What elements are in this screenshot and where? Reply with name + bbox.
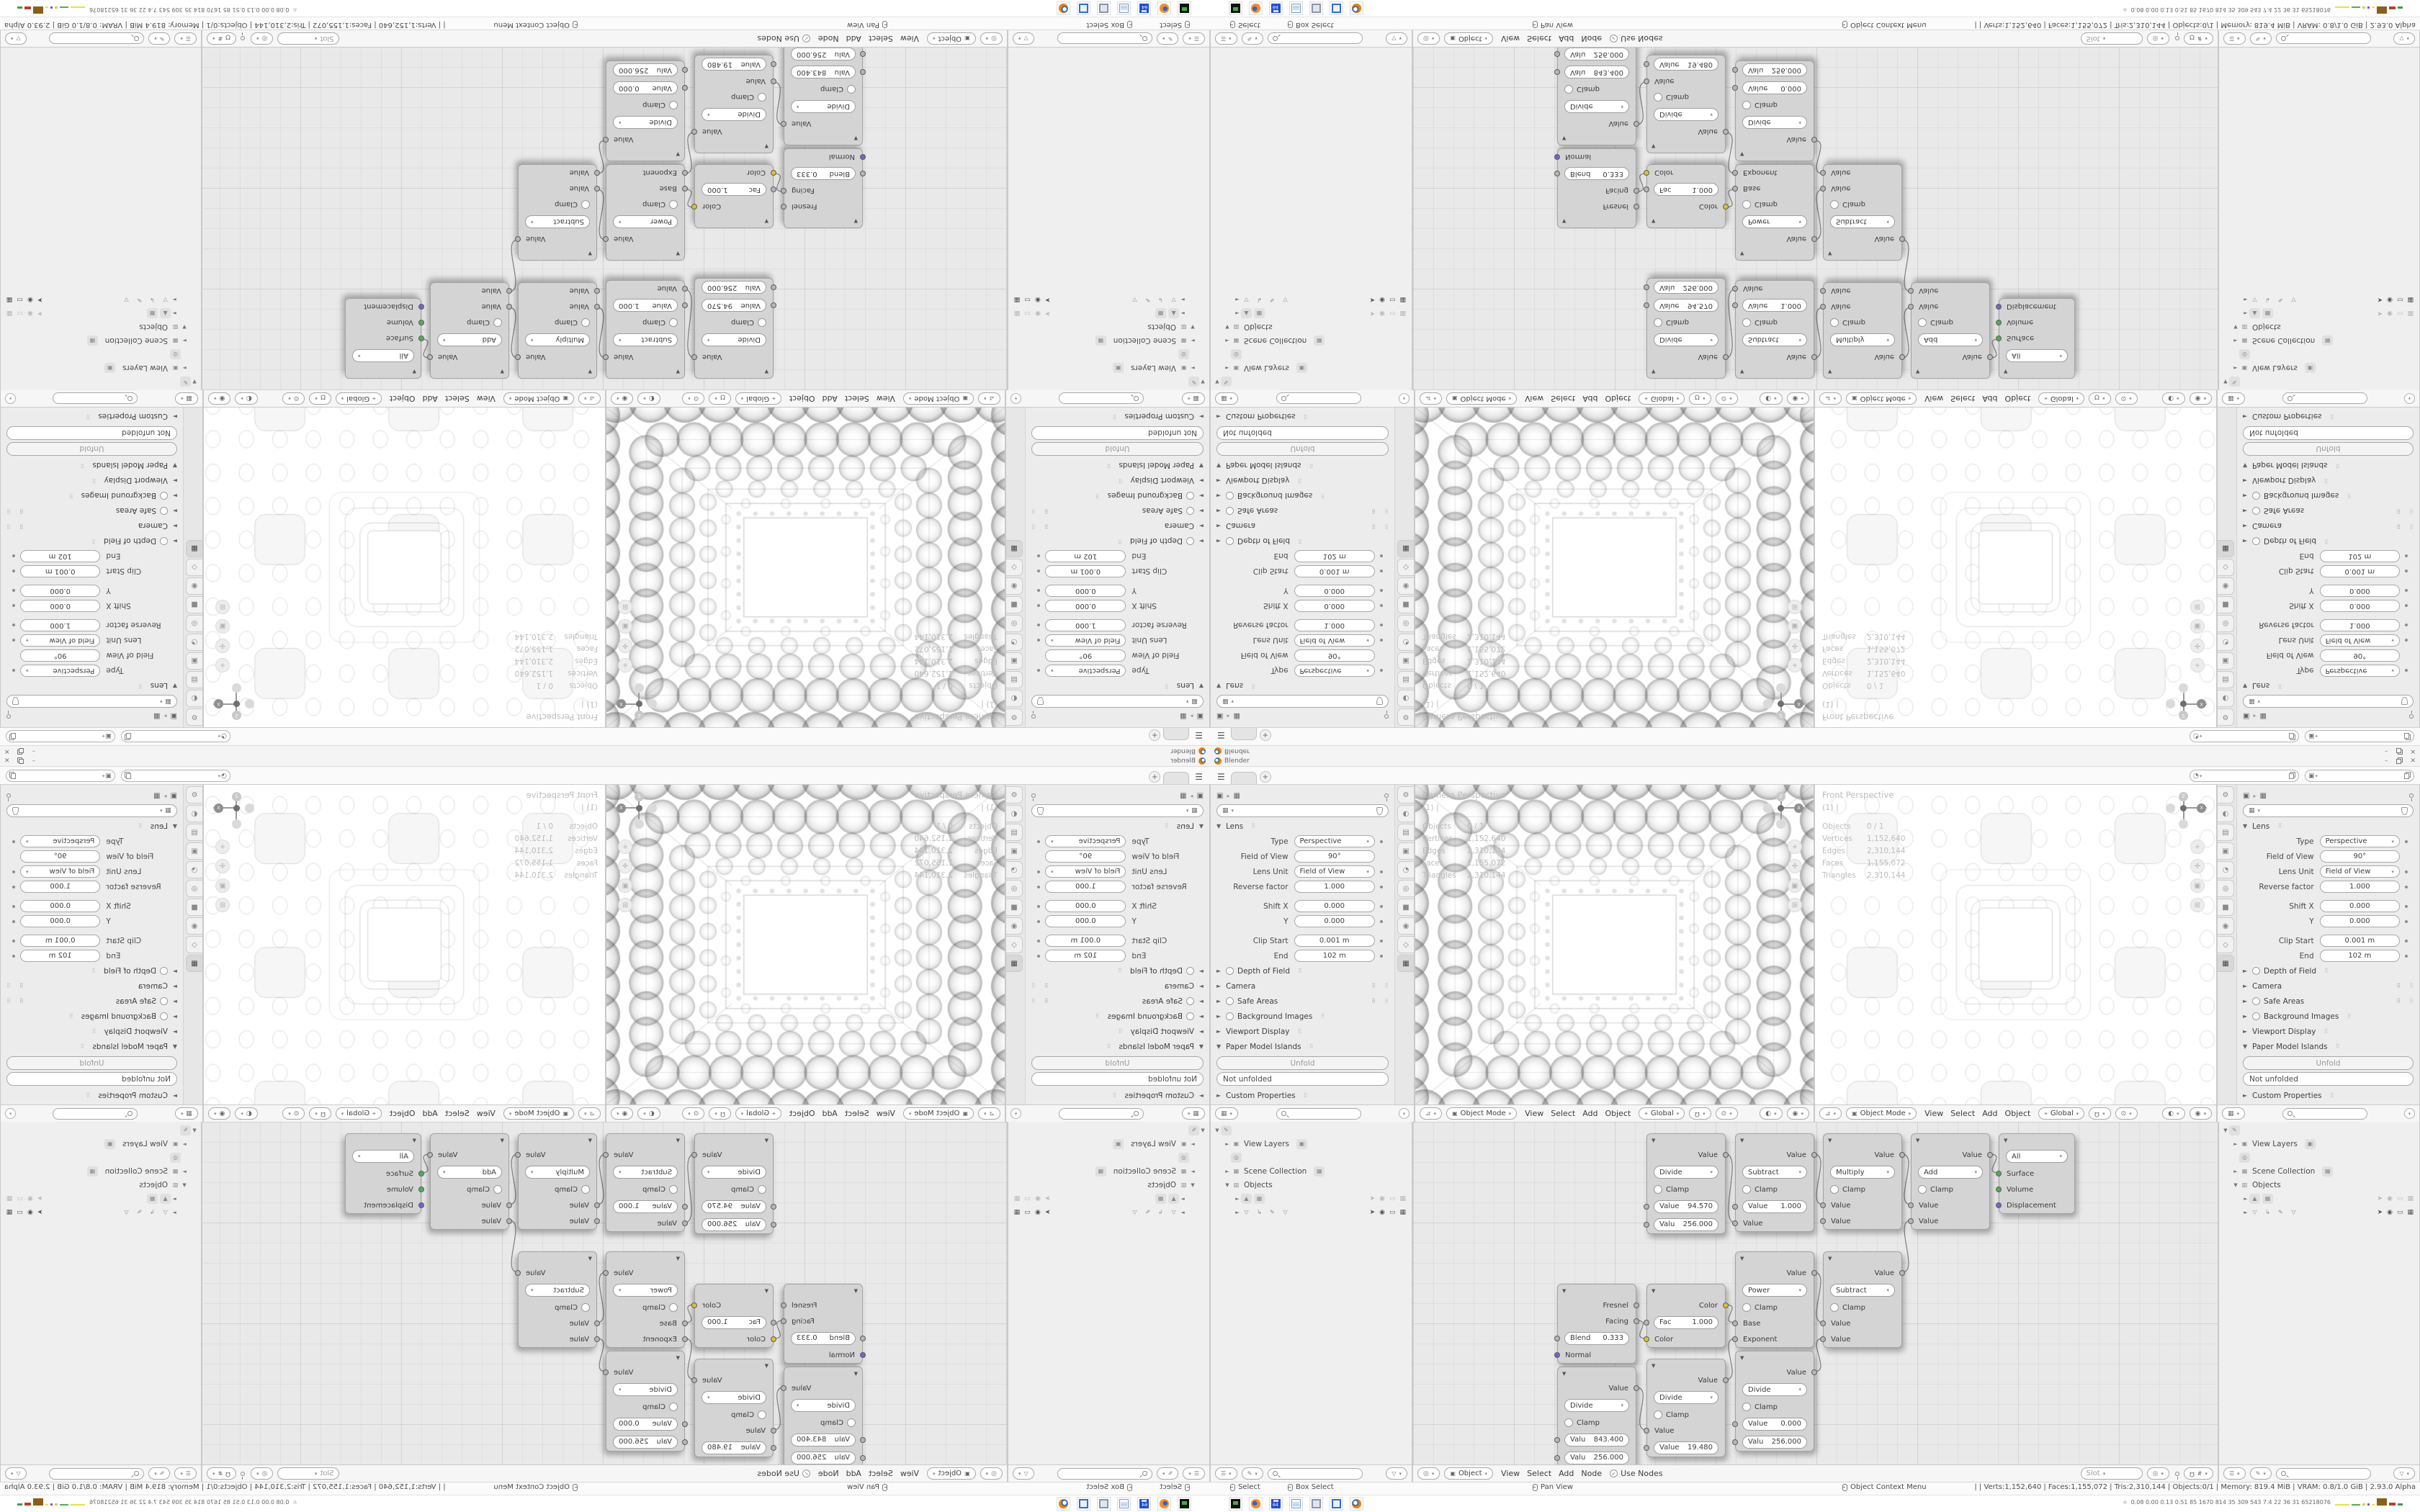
eye-icon[interactable]: ◉ bbox=[1379, 1195, 1385, 1202]
menu-object[interactable]: Object bbox=[1601, 394, 1634, 403]
editor-type-button[interactable]: ⊿▾ bbox=[978, 1107, 1000, 1120]
property-dropdown[interactable]: Field of View▾ bbox=[20, 634, 100, 647]
outliner-row[interactable]: ▼✎ bbox=[1214, 1123, 1409, 1137]
properties-tab-constraints[interactable]: ◇ bbox=[2218, 559, 2234, 576]
snap-toggle[interactable]: Ω▾ bbox=[709, 392, 730, 405]
outliner-row[interactable]: ◎ bbox=[1011, 1151, 1206, 1164]
panel-header-depth-of-field[interactable]: ►Depth of Field⠿ bbox=[2243, 963, 2414, 978]
output-socket[interactable] bbox=[1723, 204, 1729, 210]
menu-view[interactable]: View bbox=[897, 1469, 923, 1478]
outliner-row[interactable]: ►▣View Layers▣ bbox=[1011, 361, 1206, 375]
property-field[interactable]: 1.000 bbox=[1045, 619, 1126, 631]
menu-select[interactable]: Select bbox=[1547, 394, 1579, 403]
outliner-row[interactable]: ▼✎ bbox=[2222, 375, 2416, 389]
properties-options-button[interactable]: ▾ bbox=[1399, 1108, 1410, 1119]
pin-icon[interactable] bbox=[1031, 793, 1036, 798]
properties-tab-scene[interactable]: ◔ bbox=[2218, 861, 2234, 878]
panel-header-viewport-display[interactable]: ►Viewport Display⠿ bbox=[1031, 1024, 1204, 1039]
panel-header-lens[interactable]: ▼Lens⠿ bbox=[1031, 678, 1204, 693]
checkbox[interactable] bbox=[160, 492, 168, 500]
outliner-search-input[interactable] bbox=[1057, 33, 1152, 45]
property-field[interactable]: 102 m bbox=[1045, 950, 1126, 962]
display-mode-button[interactable]: ☰▾ bbox=[1215, 1467, 1237, 1480]
output-socket[interactable] bbox=[603, 1369, 609, 1375]
animate-dot[interactable] bbox=[1037, 920, 1040, 923]
operation-dropdown[interactable]: Divide▾ bbox=[1742, 1383, 1807, 1396]
animate-dot[interactable] bbox=[12, 955, 15, 958]
property-field[interactable]: 0.000 bbox=[2320, 915, 2400, 927]
panel-header-depth-of-field[interactable]: ►Depth of Field⠿ bbox=[6, 963, 177, 978]
monitor-icon[interactable]: ▭ bbox=[1389, 297, 1396, 304]
orientation-dropdown[interactable]: ⌖Global▾ bbox=[2038, 1107, 2084, 1120]
shader-node-editor[interactable]: ▼ValueDivide▾ClampValue94.570Valu256.000… bbox=[202, 1122, 1008, 1482]
output-socket[interactable] bbox=[1811, 1270, 1817, 1276]
proportional-editing-toggle[interactable]: ⊙▾ bbox=[2115, 392, 2138, 405]
property-field[interactable]: 90° bbox=[1045, 649, 1126, 662]
animate-dot[interactable] bbox=[12, 605, 15, 608]
node-canvas[interactable]: ▼ValueDivide▾ClampValue94.570Valu256.000… bbox=[1413, 48, 2218, 390]
outliner-row[interactable]: ▼▥Objects bbox=[2222, 320, 2416, 334]
property-dropdown[interactable]: Field of View▾ bbox=[1045, 634, 1126, 647]
clamp-checkbox[interactable] bbox=[1918, 318, 1927, 327]
operation-dropdown[interactable]: Subtract▾ bbox=[1830, 215, 1895, 228]
value-field[interactable]: Fac1.000 bbox=[1654, 184, 1718, 197]
viewport-front-perspective[interactable]: Front Perspective (1) | Objects0 / 1Vert… bbox=[203, 785, 606, 1122]
camera-view-icon[interactable]: ▣ bbox=[1788, 878, 1802, 893]
outliner-row[interactable]: ▼✎ bbox=[1011, 375, 1206, 389]
node-math-power[interactable]: ▼ValuePower▾ClampBaseExponent bbox=[606, 1251, 685, 1348]
camera-render-icon[interactable]: ▦ bbox=[1399, 1209, 1406, 1216]
properties-tab-physics[interactable]: ◉ bbox=[2218, 577, 2234, 595]
node-math-subtract-1[interactable]: ▼ValueSubtract▾ClampValue1.000Value bbox=[606, 1133, 685, 1232]
properties-search-input[interactable] bbox=[1276, 393, 1361, 405]
node-invert[interactable]: ▼ColorFac1.000Color bbox=[694, 1284, 774, 1348]
overlays-toggle[interactable]: ◐▾ bbox=[235, 1107, 257, 1120]
node-layer-weight[interactable]: ▼FresnelFacingBlend0.333Normal bbox=[784, 1284, 863, 1364]
input-socket[interactable] bbox=[771, 1336, 776, 1342]
input-socket[interactable] bbox=[1644, 170, 1649, 176]
camera-render-icon[interactable]: ▦ bbox=[1014, 1209, 1021, 1216]
eye-icon[interactable]: ◉ bbox=[1379, 1209, 1385, 1216]
panel-header-safe-areas[interactable]: ►Safe Areas⠿⠿ bbox=[1216, 503, 1389, 518]
panel-header-lens[interactable]: ▼Lens⠿ bbox=[1216, 678, 1389, 693]
properties-tab-object[interactable]: ■ bbox=[2218, 899, 2234, 916]
input-socket[interactable] bbox=[1820, 1336, 1826, 1342]
zoom-tool-icon[interactable]: + bbox=[1788, 840, 1802, 854]
unfold-button[interactable]: Unfold bbox=[6, 442, 177, 456]
input-socket[interactable] bbox=[682, 1320, 688, 1326]
properties-tab-constraints[interactable]: ◇ bbox=[186, 559, 202, 576]
eye-icon[interactable]: ◉ bbox=[1379, 297, 1385, 304]
properties-tab-physics[interactable]: ◉ bbox=[1006, 577, 1023, 595]
cursor-icon[interactable]: ➤ bbox=[1045, 310, 1051, 318]
panel-header-lens[interactable]: ▼Lens⠿ bbox=[6, 819, 177, 834]
animate-dot[interactable] bbox=[2405, 955, 2408, 958]
editor-type-button[interactable]: ⊿▾ bbox=[578, 1107, 601, 1120]
camera-data-selector[interactable]: ▦▾ bbox=[1216, 695, 1389, 708]
properties-options-button[interactable]: ▾ bbox=[2404, 393, 2415, 404]
outliner-row[interactable]: ►▽↳✎▽➤◉▭▦ bbox=[1011, 293, 1206, 307]
properties-tab-physics[interactable]: ◉ bbox=[2218, 917, 2234, 935]
camera-render-icon[interactable]: ▦ bbox=[2407, 310, 2414, 318]
camera-view-icon[interactable]: ▣ bbox=[2190, 878, 2205, 893]
navigation-gizmo[interactable]: ZX bbox=[214, 680, 254, 720]
properties-tab-scene[interactable]: ◔ bbox=[186, 861, 202, 878]
menu-hamburger-icon[interactable]: ☰ bbox=[1217, 730, 1225, 740]
panel-header-camera[interactable]: ►Camera⠿⠿ bbox=[1031, 518, 1204, 534]
camera-view-icon[interactable]: ▣ bbox=[2190, 619, 2205, 634]
camera-view-icon[interactable]: ▣ bbox=[215, 619, 230, 634]
properties-tab-object-data[interactable]: ▦ bbox=[1397, 955, 1414, 972]
properties-tab-object[interactable]: ■ bbox=[1006, 899, 1023, 916]
properties-tab-tool[interactable]: ⚙ bbox=[2218, 786, 2234, 804]
use-nodes-checkbox[interactable]: ✓ Use Nodes bbox=[757, 34, 810, 43]
fake-user-shield-icon[interactable] bbox=[1376, 807, 1383, 815]
pin-icon[interactable] bbox=[241, 37, 245, 41]
output-socket[interactable] bbox=[1723, 1302, 1729, 1308]
display-mode-button[interactable]: ☰▾ bbox=[1215, 32, 1237, 45]
display-mode-button[interactable]: ☰▾ bbox=[174, 32, 197, 45]
animate-dot[interactable] bbox=[2405, 670, 2408, 672]
mode-dropdown[interactable]: ▣Object Mode▾ bbox=[1846, 392, 1917, 405]
clamp-checkbox[interactable] bbox=[581, 1303, 590, 1312]
output-socket[interactable] bbox=[427, 354, 433, 360]
minimize-button[interactable]: – bbox=[2385, 747, 2388, 755]
grid-toggle-icon[interactable]: ⊞ bbox=[215, 600, 230, 614]
input-socket[interactable] bbox=[682, 1439, 688, 1445]
checkbox[interactable] bbox=[1186, 507, 1194, 515]
property-field[interactable]: 90° bbox=[1045, 850, 1126, 863]
editor-type-button[interactable]: ⊿▾ bbox=[1420, 392, 1442, 405]
operation-dropdown[interactable]: Subtract▾ bbox=[613, 333, 678, 346]
filter-mode-button[interactable]: ✎▾ bbox=[2250, 32, 2272, 45]
property-dropdown[interactable]: Perspective▾ bbox=[1045, 665, 1126, 677]
input-socket[interactable] bbox=[1732, 186, 1738, 192]
menu-object[interactable]: Object bbox=[2001, 394, 2034, 403]
input-socket[interactable] bbox=[1820, 288, 1826, 294]
value-field[interactable]: Valu256.000 bbox=[791, 48, 856, 61]
filter-mode-button[interactable]: ✎▾ bbox=[2250, 1467, 2272, 1480]
operation-dropdown[interactable]: Subtract▾ bbox=[1830, 1284, 1895, 1297]
orientation-dropdown[interactable]: ⌖Global▾ bbox=[1639, 392, 1685, 405]
outliner-row[interactable]: ►▦Scene Collection▦ bbox=[2222, 334, 2416, 348]
outliner-row[interactable]: ▼▥Objects bbox=[1214, 320, 1409, 334]
properties-tab-world[interactable]: ◎ bbox=[1006, 615, 1023, 632]
animate-dot[interactable] bbox=[1380, 555, 1383, 558]
proportional-editing-toggle[interactable]: ⊙▾ bbox=[1716, 392, 1738, 405]
properties-tab-tool[interactable]: ⚙ bbox=[1397, 786, 1414, 804]
cursor-icon[interactable]: ➤ bbox=[1045, 1195, 1051, 1202]
outliner-row[interactable]: ►▽↳✎▽➤◉▭▦ bbox=[2222, 1205, 2416, 1219]
node-math-power[interactable]: ▼ValuePower▾ClampBaseExponent bbox=[1735, 164, 1814, 261]
animate-dot[interactable] bbox=[1380, 590, 1383, 593]
snap-toggle[interactable]: Ω▾ bbox=[709, 1107, 730, 1120]
animate-dot[interactable] bbox=[12, 670, 15, 672]
properties-tab-render[interactable]: ◐ bbox=[186, 805, 202, 822]
animate-dot[interactable] bbox=[1037, 590, 1040, 593]
workspace-tab[interactable] bbox=[1231, 772, 1257, 784]
panel-header-viewport-display[interactable]: ►Viewport Display⠿ bbox=[2243, 473, 2414, 488]
outliner-row[interactable]: ►▦Scene Collection▦ bbox=[1011, 334, 1206, 348]
menu-view[interactable]: View bbox=[1497, 1469, 1523, 1478]
shader-node-editor[interactable]: ▼ValueDivide▾ClampValue94.570Valu256.000… bbox=[202, 30, 1008, 390]
outliner-row[interactable]: ►▦Scene Collection▦ bbox=[1214, 1164, 1409, 1178]
property-field[interactable]: 0.001 m bbox=[1045, 565, 1126, 577]
property-field[interactable]: 0.000 bbox=[1294, 915, 1375, 927]
node-math-subtract-2[interactable]: ▼ValueSubtract▾ClampValueValue bbox=[518, 1251, 597, 1348]
new-scene-icon[interactable] bbox=[126, 734, 131, 739]
menu-select[interactable]: Select bbox=[841, 394, 873, 403]
properties-search-input[interactable] bbox=[1059, 393, 1144, 405]
eye-icon[interactable]: ◉ bbox=[2387, 310, 2393, 318]
pin-icon[interactable] bbox=[6, 714, 11, 719]
eye-icon[interactable]: ◉ bbox=[1035, 310, 1041, 318]
output-socket[interactable] bbox=[691, 129, 697, 135]
filter-button[interactable]: ▽▾ bbox=[5, 1467, 27, 1480]
zoom-tool-icon[interactable]: + bbox=[1788, 658, 1802, 672]
editor-type-button[interactable]: ▦▾ bbox=[175, 1107, 198, 1120]
viewport-camera-perspective[interactable]: Camera Perspective (1) | Objects0 / 1Ver… bbox=[1415, 785, 1814, 1122]
outliner-search-input[interactable] bbox=[49, 33, 144, 45]
animate-dot[interactable] bbox=[1380, 670, 1383, 672]
operation-dropdown[interactable]: Add▾ bbox=[437, 333, 502, 346]
outliner-row[interactable]: ◎ bbox=[4, 348, 198, 361]
node-math-multiply[interactable]: ▼ValueMultiply▾ClampValueValue bbox=[1823, 282, 1902, 379]
display-mode-button[interactable]: ☰▾ bbox=[1183, 32, 1205, 45]
outliner-row[interactable]: ►▦Scene Collection▦ bbox=[1214, 334, 1409, 348]
panel-header-camera[interactable]: ►Camera⠿⠿ bbox=[2243, 978, 2414, 994]
monitor-icon[interactable]: ▭ bbox=[17, 310, 24, 318]
pin-icon[interactable] bbox=[2175, 37, 2179, 41]
input-socket[interactable] bbox=[771, 1428, 776, 1434]
property-field[interactable]: 0.000 bbox=[20, 600, 100, 612]
pin-icon[interactable] bbox=[2409, 714, 2414, 719]
checkbox[interactable] bbox=[2252, 997, 2260, 1005]
new-view-layer-icon[interactable] bbox=[11, 734, 16, 739]
node-material-output[interactable]: ▼All▾SurfaceVolumeDisplacement bbox=[345, 1133, 421, 1214]
input-socket[interactable] bbox=[594, 170, 600, 176]
editor-type-button[interactable]: ⊿▾ bbox=[1819, 392, 1842, 405]
value-field[interactable]: Valu256.000 bbox=[613, 1436, 678, 1449]
taskbar-icon-blender[interactable] bbox=[1350, 1497, 1363, 1511]
properties-tab-physics[interactable]: ◉ bbox=[1006, 917, 1023, 935]
view-layer-selector[interactable]: ▣▾ bbox=[6, 770, 115, 782]
properties-tab-output[interactable]: ▤ bbox=[2218, 824, 2234, 841]
property-field[interactable]: 0.001 m bbox=[2320, 935, 2400, 947]
orientation-dropdown[interactable]: ⌖Global▾ bbox=[2038, 392, 2084, 405]
input-socket[interactable] bbox=[771, 62, 776, 68]
animate-dot[interactable] bbox=[1380, 920, 1383, 923]
properties-tab-world[interactable]: ◎ bbox=[2218, 615, 2234, 632]
mode-dropdown[interactable]: ▣Object Mode▾ bbox=[1446, 1107, 1517, 1120]
filter-button[interactable]: ▽▾ bbox=[2393, 32, 2415, 45]
checkbox[interactable] bbox=[2252, 507, 2260, 515]
outliner-row[interactable]: ▼✎ bbox=[1214, 375, 1409, 389]
menu-add[interactable]: Add bbox=[1555, 1469, 1577, 1478]
outliner-row[interactable]: ►▽↳✎▽➤◉▭▦ bbox=[4, 293, 198, 307]
properties-tab-tool[interactable]: ⚙ bbox=[186, 786, 202, 804]
outliner-row[interactable]: ▼▥Objects bbox=[1011, 1178, 1206, 1192]
move-tool-icon[interactable]: ✛ bbox=[1788, 639, 1802, 653]
input-socket[interactable] bbox=[1554, 1437, 1560, 1443]
panel-header-camera[interactable]: ►Camera⠿⠿ bbox=[2243, 518, 2414, 534]
new-view-layer-icon[interactable] bbox=[2404, 734, 2409, 739]
filter-button[interactable]: ▽▾ bbox=[1013, 1467, 1034, 1480]
output-socket[interactable] bbox=[1987, 1152, 1993, 1158]
zoom-tool-icon[interactable]: + bbox=[215, 840, 230, 854]
outliner-row[interactable]: ►▲▦➤◉▭▦ bbox=[1214, 307, 1409, 320]
outliner-row[interactable]: ◎ bbox=[1011, 348, 1206, 361]
panel-header-camera[interactable]: ►Camera⠿⠿ bbox=[1216, 978, 1389, 994]
panel-header-depth-of-field[interactable]: ►Depth of Field⠿ bbox=[1216, 534, 1389, 549]
animate-dot[interactable] bbox=[12, 590, 15, 593]
node-math-divide-1[interactable]: ▼ValueDivide▾ClampValue94.570Valu256.000 bbox=[1646, 1133, 1726, 1234]
input-socket[interactable] bbox=[594, 186, 600, 192]
value-field[interactable]: Value0.000 bbox=[613, 82, 678, 95]
node-math-multiply[interactable]: ▼ValueMultiply▾ClampValueValue bbox=[518, 282, 597, 379]
navigation-gizmo[interactable]: ZX bbox=[2166, 792, 2206, 832]
overlays-toggle[interactable]: ◐▾ bbox=[2162, 392, 2184, 405]
menu-object[interactable]: Object bbox=[2001, 1109, 2034, 1118]
overlays-toggle[interactable]: ◐▾ bbox=[2162, 1107, 2184, 1120]
property-field[interactable]: 0.001 m bbox=[20, 935, 100, 947]
zoom-tool-icon[interactable]: + bbox=[618, 658, 632, 672]
taskbar-icon-blender[interactable] bbox=[1057, 1497, 1070, 1511]
clamp-checkbox[interactable] bbox=[669, 101, 678, 109]
overlays-toggle[interactable]: ◐▾ bbox=[1760, 392, 1782, 405]
input-socket[interactable] bbox=[594, 1320, 600, 1326]
animate-dot[interactable] bbox=[1037, 670, 1040, 672]
proportional-editing-toggle[interactable]: ⊙▾ bbox=[2115, 1107, 2138, 1120]
node-math-divide-3[interactable]: ▼ValueDivide▾ClampValueValue19.480 bbox=[1646, 1359, 1726, 1457]
clamp-checkbox[interactable] bbox=[1654, 1185, 1662, 1194]
output-socket[interactable] bbox=[1899, 1152, 1905, 1158]
menu-select[interactable]: Select bbox=[865, 1469, 897, 1478]
camera-view-icon[interactable]: ▣ bbox=[215, 878, 230, 893]
property-field[interactable]: 0.000 bbox=[1294, 900, 1375, 912]
clamp-checkbox[interactable] bbox=[1654, 1410, 1662, 1419]
zoom-tool-icon[interactable]: + bbox=[2190, 658, 2205, 672]
properties-tab-object[interactable]: ■ bbox=[1397, 596, 1414, 613]
output-socket[interactable] bbox=[1633, 121, 1639, 127]
operation-dropdown[interactable]: Divide▾ bbox=[1654, 333, 1718, 346]
checkbox[interactable] bbox=[2252, 1012, 2260, 1020]
properties-tab-output[interactable]: ▤ bbox=[1397, 671, 1414, 688]
taskbar-icon-disk64[interactable] bbox=[1137, 1497, 1151, 1511]
menu-add[interactable]: Add bbox=[819, 394, 841, 403]
clamp-checkbox[interactable] bbox=[1564, 1418, 1573, 1427]
input-socket[interactable] bbox=[1820, 1320, 1826, 1326]
pin-icon[interactable] bbox=[241, 1472, 245, 1476]
animate-dot[interactable] bbox=[1037, 886, 1040, 888]
menu-view[interactable]: View bbox=[897, 34, 923, 43]
outliner-row[interactable]: ▼▥Objects bbox=[4, 1178, 198, 1192]
material-browse-button[interactable]: ◎▾ bbox=[2147, 32, 2169, 45]
node-snap-toggle[interactable]: Ω#▾ bbox=[2184, 1467, 2213, 1480]
properties-tab-world[interactable]: ◎ bbox=[1006, 880, 1023, 897]
checkbox[interactable] bbox=[160, 1012, 168, 1020]
menu-node[interactable]: Node bbox=[815, 1469, 843, 1478]
scene-selector[interactable]: ◔▾ bbox=[121, 730, 230, 742]
input-socket[interactable] bbox=[1908, 288, 1914, 294]
pin-icon[interactable] bbox=[1384, 793, 1389, 798]
operation-dropdown[interactable]: Divide▾ bbox=[702, 1391, 766, 1404]
input-socket[interactable] bbox=[1732, 86, 1738, 91]
value-field[interactable]: Value19.480 bbox=[1654, 58, 1718, 71]
input-socket[interactable] bbox=[682, 68, 688, 73]
node-math-divide-1[interactable]: ▼ValueDivide▾ClampValue94.570Valu256.000 bbox=[1646, 278, 1726, 379]
taskbar-icon-window[interactable] bbox=[1097, 1497, 1111, 1511]
properties-tab-scene[interactable]: ◔ bbox=[2218, 634, 2234, 651]
input-socket[interactable] bbox=[771, 187, 776, 193]
animate-dot[interactable] bbox=[12, 624, 15, 627]
cursor-icon[interactable]: ➤ bbox=[37, 1209, 43, 1216]
operation-dropdown[interactable]: Divide▾ bbox=[702, 108, 766, 121]
properties-tab-object-data[interactable]: ▦ bbox=[1006, 955, 1023, 972]
taskbar-icon-blender[interactable] bbox=[1057, 1, 1070, 15]
editor-type-button[interactable]: ▦▾ bbox=[1182, 1107, 1205, 1120]
animate-dot[interactable] bbox=[1380, 886, 1383, 888]
checkbox[interactable] bbox=[1226, 492, 1234, 500]
cursor-icon[interactable]: ➤ bbox=[1370, 1195, 1376, 1202]
node-layer-weight[interactable]: ▼FresnelFacingBlend0.333Normal bbox=[1557, 1284, 1636, 1364]
checkbox[interactable] bbox=[160, 967, 168, 975]
properties-tab-tool[interactable]: ⚙ bbox=[1006, 786, 1023, 804]
filter-mode-button[interactable]: ✎▾ bbox=[148, 32, 170, 45]
menu-node[interactable]: Node bbox=[815, 34, 843, 43]
outliner-search-input[interactable] bbox=[2276, 33, 2371, 45]
material-browse-button[interactable]: ◎▾ bbox=[251, 32, 273, 45]
output-socket[interactable] bbox=[781, 1318, 786, 1324]
panel-header-paper-model[interactable]: ▼Paper Model Islands⠿ bbox=[1216, 1039, 1389, 1054]
cursor-icon[interactable]: ➤ bbox=[1370, 310, 1376, 318]
clamp-checkbox[interactable] bbox=[1654, 93, 1662, 102]
input-socket[interactable] bbox=[1554, 171, 1560, 177]
value-field[interactable]: Value0.000 bbox=[1742, 82, 1807, 95]
menu-view[interactable]: View bbox=[873, 1109, 899, 1118]
operation-dropdown[interactable]: Divide▾ bbox=[613, 1383, 678, 1396]
outliner-row[interactable]: ►▣View Layers▣ bbox=[4, 1137, 198, 1151]
node-invert[interactable]: ▼ColorFac1.000Color bbox=[694, 164, 774, 228]
checkbox[interactable] bbox=[1186, 997, 1194, 1005]
property-field[interactable]: 0.001 m bbox=[20, 565, 100, 577]
input-socket[interactable] bbox=[1644, 285, 1649, 291]
output-socket[interactable] bbox=[603, 1270, 609, 1276]
properties-tab-output[interactable]: ▤ bbox=[1006, 671, 1023, 688]
orientation-dropdown[interactable]: ⌖Global▾ bbox=[336, 392, 382, 405]
panel-header-paper-model[interactable]: ▼Paper Model Islands⠿ bbox=[1031, 1039, 1204, 1054]
animate-dot[interactable] bbox=[2405, 886, 2408, 888]
animate-dot[interactable] bbox=[2405, 940, 2408, 942]
properties-tab-view-layer[interactable]: ▣ bbox=[186, 652, 202, 670]
node-layer-weight[interactable]: ▼FresnelFacingBlend0.333Normal bbox=[784, 148, 863, 228]
proportional-editing-toggle[interactable]: ⊙▾ bbox=[682, 1107, 704, 1120]
output-socket[interactable] bbox=[781, 188, 786, 194]
node-material-output[interactable]: ▼All▾SurfaceVolumeDisplacement bbox=[1999, 298, 2075, 379]
input-socket[interactable] bbox=[1644, 1204, 1649, 1210]
property-dropdown[interactable]: Field of View▾ bbox=[20, 865, 100, 878]
outliner-row[interactable]: ►▽↳✎▽➤◉▭▦ bbox=[1214, 293, 1409, 307]
properties-tab-scene[interactable]: ◔ bbox=[1006, 634, 1023, 651]
operation-dropdown[interactable]: Subtract▾ bbox=[525, 215, 590, 228]
node-math-divide-3[interactable]: ▼ValueDivide▾ClampValueValue19.480 bbox=[694, 55, 774, 153]
panel-header-viewport-display[interactable]: ►Viewport Display⠿ bbox=[6, 473, 177, 488]
operation-dropdown[interactable]: Divide▾ bbox=[1564, 1399, 1629, 1412]
panel-header-background-images[interactable]: ►Background Images⠿ bbox=[1031, 1009, 1204, 1024]
properties-tab-constraints[interactable]: ◇ bbox=[1397, 936, 1414, 953]
outliner-row[interactable]: ►▲▦➤◉▭▦ bbox=[1011, 307, 1206, 320]
output-socket[interactable] bbox=[1633, 1318, 1639, 1324]
